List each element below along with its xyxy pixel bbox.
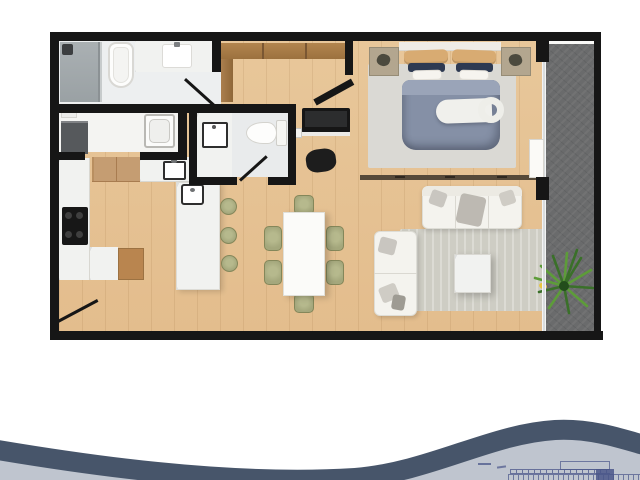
dining-table [283, 212, 325, 296]
throw-blanket-curl [478, 97, 504, 123]
wall-ensuite-west [189, 113, 197, 185]
duvet-fold [402, 80, 500, 95]
wall-top [50, 32, 601, 41]
floorplan-render-canvas [0, 0, 640, 480]
wall-right [594, 32, 601, 340]
wall-balcony-stub-mid [536, 177, 549, 200]
vanity-faucet-icon [174, 42, 180, 47]
loveseat-seam [374, 273, 417, 274]
desk-ledge [302, 132, 350, 136]
kitchen-sink [163, 161, 186, 180]
mini-blueprint-dash [478, 463, 491, 465]
hall-closet-divider [262, 43, 264, 59]
wall-ensuite-south-a [189, 177, 237, 185]
console-handle [395, 176, 405, 178]
hall-closet-divider [305, 43, 307, 59]
dining-chair [264, 226, 282, 251]
wall-bathroom-east [212, 33, 221, 72]
dining-chair [326, 226, 344, 251]
toilet-tank [276, 120, 287, 146]
fridge-cabinet-seam [116, 157, 117, 182]
shower-head-icon [62, 44, 73, 55]
bar-stool [220, 227, 237, 244]
sofa-seam [488, 196, 489, 229]
hall-closet-return [221, 59, 233, 102]
wall-ensuite-east [288, 104, 296, 185]
washer-lid [149, 119, 170, 143]
wall-left [50, 32, 59, 340]
mini-blueprint-ticks [508, 474, 640, 480]
dining-chair [326, 260, 344, 285]
mini-blueprint-dash [497, 465, 506, 468]
cooktop-burner-icon [76, 231, 83, 238]
ensuite-faucet-icon [212, 125, 216, 129]
utility-cabinet [61, 121, 88, 154]
shower-glass [100, 42, 102, 102]
vanity-basin [162, 44, 192, 68]
wall-utility-south-b [140, 152, 187, 160]
wall-entry-stub [345, 41, 353, 75]
floor-plan [0, 0, 640, 400]
cooktop-burner-icon [65, 212, 72, 219]
wall-bathroom-south [59, 104, 296, 113]
wall-utility-south-a [59, 152, 85, 160]
kitchen-cart [118, 248, 144, 280]
cooktop-burner-icon [76, 212, 83, 219]
hall-closet [221, 43, 348, 59]
sofa-seam [455, 196, 456, 229]
cooktop-burner-icon [65, 231, 72, 238]
living-window-glass [542, 200, 546, 331]
desk-top [305, 111, 347, 127]
wall-ensuite-south-b [268, 177, 296, 185]
mini-blueprint [470, 458, 640, 480]
console-handle [497, 176, 507, 178]
pillow-white-right [459, 70, 489, 81]
window-bench [529, 139, 544, 178]
dining-chair [264, 260, 282, 285]
island-faucet-icon [190, 188, 195, 192]
toilet-bowl [246, 122, 277, 144]
loveseat-pillow [391, 294, 406, 311]
bar-stool [220, 198, 237, 215]
coffee-table [454, 254, 491, 293]
dining-chair [294, 293, 314, 313]
counter-return [90, 247, 118, 280]
console-handle [445, 176, 455, 178]
wall-bottom [50, 331, 603, 340]
bathtub-basin [113, 47, 129, 83]
pillow-white-left [412, 70, 442, 81]
bar-stool [221, 255, 238, 272]
wall-balcony-stub-top [536, 37, 549, 62]
